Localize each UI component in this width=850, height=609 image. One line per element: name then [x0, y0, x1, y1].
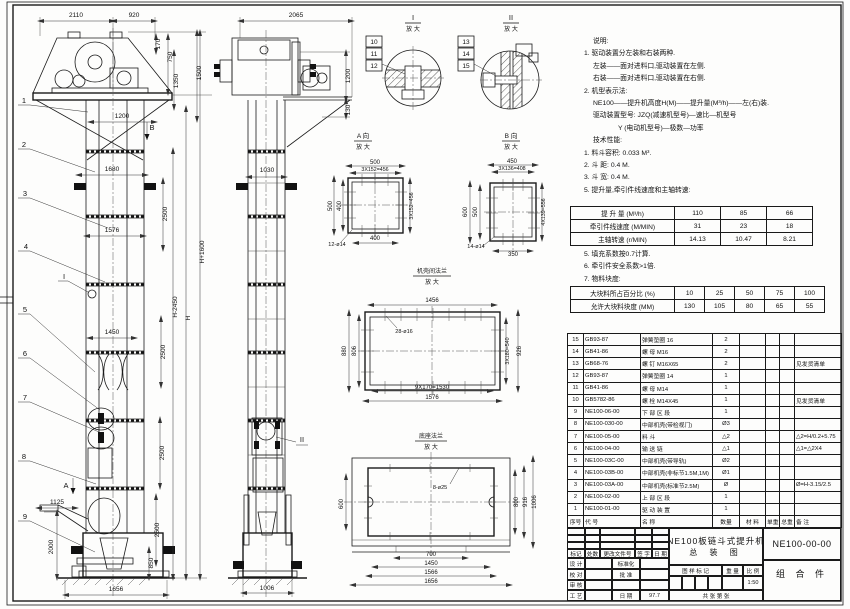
note-line: 说明: [578, 36, 841, 48]
table-cell: NE100-030-00 [584, 418, 641, 430]
table-cell [740, 431, 766, 443]
dimension-label: 806 [352, 345, 358, 356]
bom-row: 11GB41-86螺 母 M141 [568, 382, 842, 394]
table-cell: 5 [568, 455, 584, 467]
sig-cell [612, 580, 640, 590]
table-cell: 单重 [766, 515, 780, 527]
dimension-label: 916 [523, 496, 529, 507]
table-cell [780, 431, 795, 443]
dimension-label: 放 大 [406, 25, 420, 33]
dimension-label: 500 [328, 200, 334, 211]
weight-label: 重 量 [722, 565, 743, 576]
table-cell [766, 358, 780, 370]
table-cell: 18 [767, 220, 813, 233]
dimension-label: 9 [23, 512, 27, 521]
table-cell: 1 [713, 394, 740, 406]
table-cell [780, 370, 795, 382]
dimension-label: 1566 [424, 570, 438, 576]
dimension-label: 4 [24, 242, 28, 251]
sheet-count: 共 张 第 张 [669, 590, 763, 601]
bom-row: 5NE100-03C-00中部机壳(带导轨)Ø2 [568, 455, 842, 467]
note-line: 1. 料斗容积: 0.033 M³. [578, 148, 841, 160]
table-cell: 中部机壳(非标节1.5M,1M) [641, 467, 713, 479]
dimension-label: 3X152=456 [409, 192, 415, 219]
dimension-label: 7 [23, 393, 27, 402]
table-cell [740, 491, 766, 503]
table-cell: GB93-87 [584, 370, 641, 382]
table-cell: NE100-02-00 [584, 491, 641, 503]
table-cell: 螺 母 M16 [641, 346, 713, 358]
dimension-label: 1200 [115, 113, 130, 120]
table-cell: △2 [713, 431, 740, 443]
table-cell [780, 455, 795, 467]
table-cell [780, 491, 795, 503]
dimension-label: 1576 [425, 395, 439, 401]
table-cell [795, 455, 842, 467]
sig-cell [640, 569, 669, 580]
dimension-label: H-2450 [172, 296, 179, 318]
sig-cell [585, 580, 612, 590]
dimension-label: 130 [345, 104, 352, 115]
table-cell: 14 [568, 346, 584, 358]
table-cell: 14.13 [675, 233, 721, 246]
sig-cell [585, 590, 612, 601]
table-cell: 总重 [780, 515, 795, 527]
lump-size-table-wrap: 大块料所占百分比 (%)10255075100允许大块料块度 (MM)13010… [570, 286, 825, 313]
date2-label: 日 期 [612, 590, 640, 601]
detail-I [366, 23, 444, 112]
dimension-label: 400 [337, 200, 343, 211]
dimension-label: 2000 [48, 539, 55, 554]
table-cell [795, 491, 842, 503]
sig-cell [585, 569, 612, 580]
drawing-sheet: 2110920170750135015001200B168025001576H+… [0, 0, 850, 609]
bom-row: 12GB93-87弹簧垫圈 141 [568, 370, 842, 382]
stamp-cell [708, 576, 722, 590]
table-cell: 50 [735, 287, 765, 300]
table-cell [740, 346, 766, 358]
rev-cell [635, 542, 652, 549]
table-cell [740, 418, 766, 430]
dimension-label: 11 [371, 51, 378, 58]
table-cell [740, 394, 766, 406]
dimension-label: 850 [148, 557, 155, 568]
view-A-flange [334, 141, 412, 243]
casing-joints-side [248, 150, 285, 490]
dimension-label: 1006 [260, 585, 275, 592]
bom-row: 7NE100-05-00料 斗△2△2=H/0.2+5.75 [568, 431, 842, 443]
bill-of-materials: 15GB93-87弹簧垫圈 16214GB41-86螺 母 M16213GB68… [567, 333, 842, 528]
table-cell: 65 [765, 300, 795, 313]
dimension-label: 放 大 [504, 143, 518, 151]
dimension-label: II [300, 435, 304, 444]
dimension-label: 放 大 [425, 278, 439, 286]
dimension-label: I [412, 13, 414, 22]
table-cell: GB93-87 [584, 334, 641, 346]
dimension-label: 12 [370, 63, 378, 70]
table-cell [766, 479, 780, 491]
bom-row: 3NE100-03A-00中部机壳(标准节2.5M)ØØ=H-3.15/2.5 [568, 479, 842, 491]
table-cell: NE100-06-00 [584, 406, 641, 418]
table-cell [780, 443, 795, 455]
bom-wrap: 15GB93-87弹簧垫圈 16214GB41-86螺 母 M16213GB68… [567, 333, 842, 528]
table-cell: 见发货清单 [795, 394, 842, 406]
table-cell: 9 [568, 406, 584, 418]
dimension-label: 2500 [159, 445, 166, 460]
rev-cell [567, 542, 585, 549]
table-cell: 10.47 [721, 233, 767, 246]
table-cell: 1 [713, 491, 740, 503]
table-cell: GB68-76 [584, 358, 641, 370]
product-title: NE100板链斗式提升机 [669, 535, 763, 547]
front-elevation-view [33, 28, 175, 597]
table-cell [795, 334, 842, 346]
table-cell [766, 443, 780, 455]
dimension-label: 1680 [105, 166, 120, 173]
table-cell [740, 479, 766, 491]
table-cell [795, 467, 842, 479]
rev-header-change-doc: 更改文件号 [600, 549, 635, 558]
table-cell: GB41-86 [584, 346, 641, 358]
table-cell: 1 [568, 503, 584, 515]
table-cell: 下 部 区 段 [641, 406, 713, 418]
rev-header-count: 处数 [585, 549, 600, 558]
table-cell: 大块料所占百分比 (%) [571, 287, 675, 300]
note-line: 左装——面对进料口,驱动装置在左侧. [578, 61, 841, 73]
front-dimensions [18, 17, 212, 599]
dimension-label: 1500 [196, 65, 203, 80]
dimension-label: 4X139=556 [541, 198, 547, 225]
dimension-label: 600 [463, 206, 469, 217]
rev-cell [600, 528, 635, 535]
dimension-label: 14-ø14 [467, 244, 484, 250]
note-line: 1. 驱动装置分左装和右装两种. [578, 48, 841, 60]
rev-cell [585, 528, 600, 535]
table-cell: 13 [568, 358, 584, 370]
table-cell: 中部机壳(标准节2.5M) [641, 479, 713, 491]
table-cell: 10 [675, 287, 705, 300]
table-cell: 输 送 链 [641, 443, 713, 455]
note-line: 2. 斗 距: 0.4 M. [578, 160, 841, 172]
table-cell: 15 [568, 334, 584, 346]
table-cell [780, 358, 795, 370]
table-cell: NE100-03C-00 [584, 455, 641, 467]
dimension-label: 8 [22, 452, 26, 461]
review-label: 审 核 [567, 580, 585, 590]
table-cell [740, 334, 766, 346]
dimension-label: 14 [462, 51, 470, 58]
dimension-label: A [63, 481, 68, 490]
dimension-label: 13 [462, 39, 470, 46]
table-cell: GB41-86 [584, 382, 641, 394]
spec-row: 允许大块料块度 (MM)130105806555 [571, 300, 825, 313]
dimension-label: 350 [508, 252, 519, 258]
stamp-cell [695, 576, 708, 590]
dimension-label: I [63, 272, 65, 281]
table-cell [795, 382, 842, 394]
table-cell [780, 334, 795, 346]
rev-cell [567, 535, 585, 542]
table-cell: 55 [795, 300, 825, 313]
view-B-flange [470, 141, 542, 251]
dimension-label: 1656 [424, 579, 438, 585]
check-label: 校 对 [567, 569, 585, 580]
dimension-label: 2500 [160, 344, 167, 359]
table-cell: Ø=H-3.15/2.5 [795, 479, 842, 491]
table-cell: 11 [568, 382, 584, 394]
table-cell: 105 [705, 300, 735, 313]
rev-header-date: 日 期 [652, 549, 669, 558]
table-cell [766, 370, 780, 382]
table-cell [766, 418, 780, 430]
table-cell [740, 467, 766, 479]
bom-row: 4NE100-03B-00中部机壳(非标节1.5M,1M)Ø1 [568, 467, 842, 479]
bom-row: 15GB93-87弹簧垫圈 162 [568, 334, 842, 346]
table-cell [780, 467, 795, 479]
dimension-label: 2110 [69, 12, 83, 19]
table-cell: 2 [713, 358, 740, 370]
table-cell: 螺 钉 M16X65 [641, 358, 713, 370]
table-cell: 序号 [568, 515, 584, 527]
note-line: 5. 填充系数按0.7计算. [578, 249, 841, 261]
bom-row: 2NE100-02-00上 部 区 段1 [568, 491, 842, 503]
dimension-label: 28-ø16 [395, 329, 412, 335]
table-cell [766, 491, 780, 503]
dimension-label: 1030 [260, 167, 275, 174]
dimension-label: 放 大 [356, 143, 370, 151]
table-cell: 4 [568, 467, 584, 479]
table-cell [780, 394, 795, 406]
table-cell: 80 [735, 300, 765, 313]
dimension-label: 1456 [425, 298, 439, 304]
table-cell: 中部机壳(带导轨) [641, 455, 713, 467]
table-cell: 驱 动 装 置 [641, 503, 713, 515]
table-cell: Ø [713, 479, 740, 491]
base-flange-detail [344, 441, 533, 585]
table-cell [795, 418, 842, 430]
table-cell [740, 358, 766, 370]
sig-cell [585, 558, 612, 569]
bom-row: 13GB68-76螺 钉 M16X652见发货清单 [568, 358, 842, 370]
bom-row: 序号代 号名 称数量材 料单重总重备 注 [568, 515, 842, 527]
table-cell: 材 料 [740, 515, 766, 527]
detail-II [458, 23, 542, 110]
table-cell [766, 406, 780, 418]
rev-cell [585, 542, 600, 549]
dimension-label: 500 [473, 206, 479, 217]
dimension-label: 1450 [105, 329, 120, 336]
rev-cell [652, 535, 669, 542]
table-cell: NE100-05-00 [584, 431, 641, 443]
table-cell [766, 467, 780, 479]
date-value: 97.7 [640, 590, 669, 601]
table-cell: 7 [568, 431, 584, 443]
table-cell: 66 [767, 207, 813, 220]
dimension-label: H [185, 315, 192, 320]
bom-row: 8NE100-030-00中部机壳(带检视门)Ø3 [568, 418, 842, 430]
boot-section-side [228, 533, 307, 585]
table-cell [766, 431, 780, 443]
table-cell [740, 406, 766, 418]
rev-cell [652, 528, 669, 535]
table-cell [740, 382, 766, 394]
dimension-label: A 向 [357, 131, 369, 140]
capacity-speed-table: 提 升 量 (M³/h)1108566牵引件线速度 (M/MIN)312318主… [570, 206, 813, 246]
table-cell: 3 [568, 479, 584, 491]
dimension-label: 6 [23, 349, 27, 358]
dimension-label: 1200 [345, 68, 352, 83]
scale-value: 1:50 [743, 576, 763, 590]
dimension-label: 10 [370, 39, 378, 46]
table-cell: 上 部 区 段 [641, 491, 713, 503]
table-cell: 螺 栓 M14X45 [641, 394, 713, 406]
table-cell [795, 406, 842, 418]
sig-cell [640, 558, 669, 569]
dimension-label: 920 [129, 12, 140, 19]
dimension-label: 8-ø25 [433, 485, 447, 491]
general-notes: 说明:1. 驱动装置分左装和右装两种.左装——面对进料口,驱动装置在左侧.右装—… [578, 36, 841, 197]
dimension-label: 1450 [424, 561, 438, 567]
dimension-label: 170 [155, 38, 162, 49]
table-cell: 牵引件线速度 (M/MIN) [571, 220, 675, 233]
table-cell: 数量 [713, 515, 740, 527]
stamp-label: 图 样 标 记 [669, 565, 722, 576]
note-line: NE100——提升机高度H(M)——提升量(M³/h)——左(右)装. [578, 98, 841, 110]
dimension-label: H+1600 [199, 240, 206, 263]
dimension-labels: 2110920170750135015001200B168025001576H+… [22, 12, 547, 593]
weight-cell [722, 576, 743, 590]
table-cell: 2 [713, 346, 740, 358]
dimension-label: 1 [22, 96, 26, 105]
standardize-label: 标准化 [612, 558, 640, 569]
table-cell: Ø1 [713, 467, 740, 479]
dimension-label: 底座法兰 [419, 432, 443, 440]
dimension-label: 1576 [105, 227, 120, 234]
note-line: 3. 斗 宽: 0.4 M. [578, 172, 841, 184]
table-cell [780, 479, 795, 491]
table-cell: NE100-03A-00 [584, 479, 641, 491]
note-line: Y (电动机型号)—极数—功率 [578, 123, 841, 135]
table-cell: 备 注 [795, 515, 842, 527]
dimension-label: 2 [22, 140, 26, 149]
table-cell [766, 346, 780, 358]
table-cell: GB5782-86 [584, 394, 641, 406]
dimension-label: 15 [462, 63, 470, 70]
note-line: 右装——面对进料口,驱动装置在右侧. [578, 73, 841, 85]
dimension-label: 5 [23, 305, 27, 314]
table-cell: NE100-01-00 [584, 503, 641, 515]
table-cell [766, 382, 780, 394]
table-cell: 1 [713, 382, 740, 394]
table-cell [766, 503, 780, 515]
dimension-label: 1125 [50, 499, 64, 506]
table-cell: 85 [721, 207, 767, 220]
dimension-label: 800 [514, 496, 520, 507]
rev-cell [567, 528, 585, 535]
stamp-cell [669, 576, 682, 590]
dimension-label: B [149, 123, 154, 132]
rev-cell [600, 542, 635, 549]
table-cell: △1 [713, 443, 740, 455]
bom-row: 6NE100-04-00输 送 链△1△1=△2X4 [568, 443, 842, 455]
note-line: 6. 牵引件安全系数>1倍. [578, 261, 841, 273]
table-cell [740, 370, 766, 382]
table-cell: NE100-03B-00 [584, 467, 641, 479]
capacity-speed-table-wrap: 提 升 量 (M³/h)1108566牵引件线速度 (M/MIN)312318主… [570, 206, 813, 246]
table-cell: Ø2 [713, 455, 740, 467]
table-cell: 弹簧垫圈 14 [641, 370, 713, 382]
dimension-label: 700 [426, 552, 437, 558]
design-label: 设 计 [567, 558, 585, 569]
table-cell [766, 455, 780, 467]
spec-row: 大块料所占百分比 (%)10255075100 [571, 287, 825, 300]
table-cell: 主轴转速 (r/MIN) [571, 233, 675, 246]
rev-cell [652, 542, 669, 549]
table-cell: 8 [568, 418, 584, 430]
bom-row: 10GB5782-86螺 栓 M14X451见发货清单 [568, 394, 842, 406]
dimension-label: 2500 [162, 206, 169, 221]
dimension-label: II [509, 13, 513, 22]
table-cell: 1 [713, 503, 740, 515]
dimension-label: 放 大 [424, 443, 438, 451]
dimension-label: 3X180=540 [505, 337, 511, 364]
casing-joints-front [86, 150, 144, 490]
table-cell: 1 [713, 406, 740, 418]
table-cell: △1=△2X4 [795, 443, 842, 455]
table-cell: 1 [713, 370, 740, 382]
dimension-label: 3X136=408 [498, 166, 525, 172]
approve-label: 批 准 [612, 569, 640, 580]
table-cell [766, 334, 780, 346]
table-cell [795, 503, 842, 515]
table-cell: 110 [675, 207, 721, 220]
table-cell: 100 [795, 287, 825, 300]
sig-cell [640, 580, 669, 590]
note-line: 5. 提升量,牵引件线速度和主轴转速: [578, 185, 841, 197]
table-cell [780, 382, 795, 394]
rev-cell [585, 535, 600, 542]
table-cell [740, 503, 766, 515]
table-cell: △2=H/0.2+5.75 [795, 431, 842, 443]
dimension-label: 9X170=1530 [415, 385, 450, 391]
table-cell: 12 [568, 370, 584, 382]
table-cell [780, 346, 795, 358]
table-cell: NE100-04-00 [584, 443, 641, 455]
table-cell: 31 [675, 220, 721, 233]
table-cell: 允许大块料块度 (MM) [571, 300, 675, 313]
dimension-label: 2500 [154, 522, 161, 537]
table-cell: 2 [568, 491, 584, 503]
table-cell: 料 斗 [641, 431, 713, 443]
table-cell [780, 406, 795, 418]
table-cell [766, 394, 780, 406]
table-cell: 中部机壳(带检视门) [641, 418, 713, 430]
lump-size-table: 大块料所占百分比 (%)10255075100允许大块料块度 (MM)13010… [570, 286, 825, 313]
rev-cell [600, 535, 635, 542]
rev-cell [635, 528, 652, 535]
table-cell: 8.21 [767, 233, 813, 246]
part-classification: 组 合 件 [763, 560, 841, 601]
table-cell: 见发货清单 [795, 358, 842, 370]
dimension-label: 3X152=456 [361, 167, 388, 173]
drawing-number: NE100-00-00 [763, 528, 841, 560]
dimension-label: 400 [370, 236, 381, 242]
scale-label: 比 例 [743, 565, 763, 576]
table-cell: 75 [765, 287, 795, 300]
dimension-label: 12-ø14 [328, 242, 345, 248]
table-cell: 6 [568, 443, 584, 455]
note-line: 技术性能: [578, 135, 841, 147]
